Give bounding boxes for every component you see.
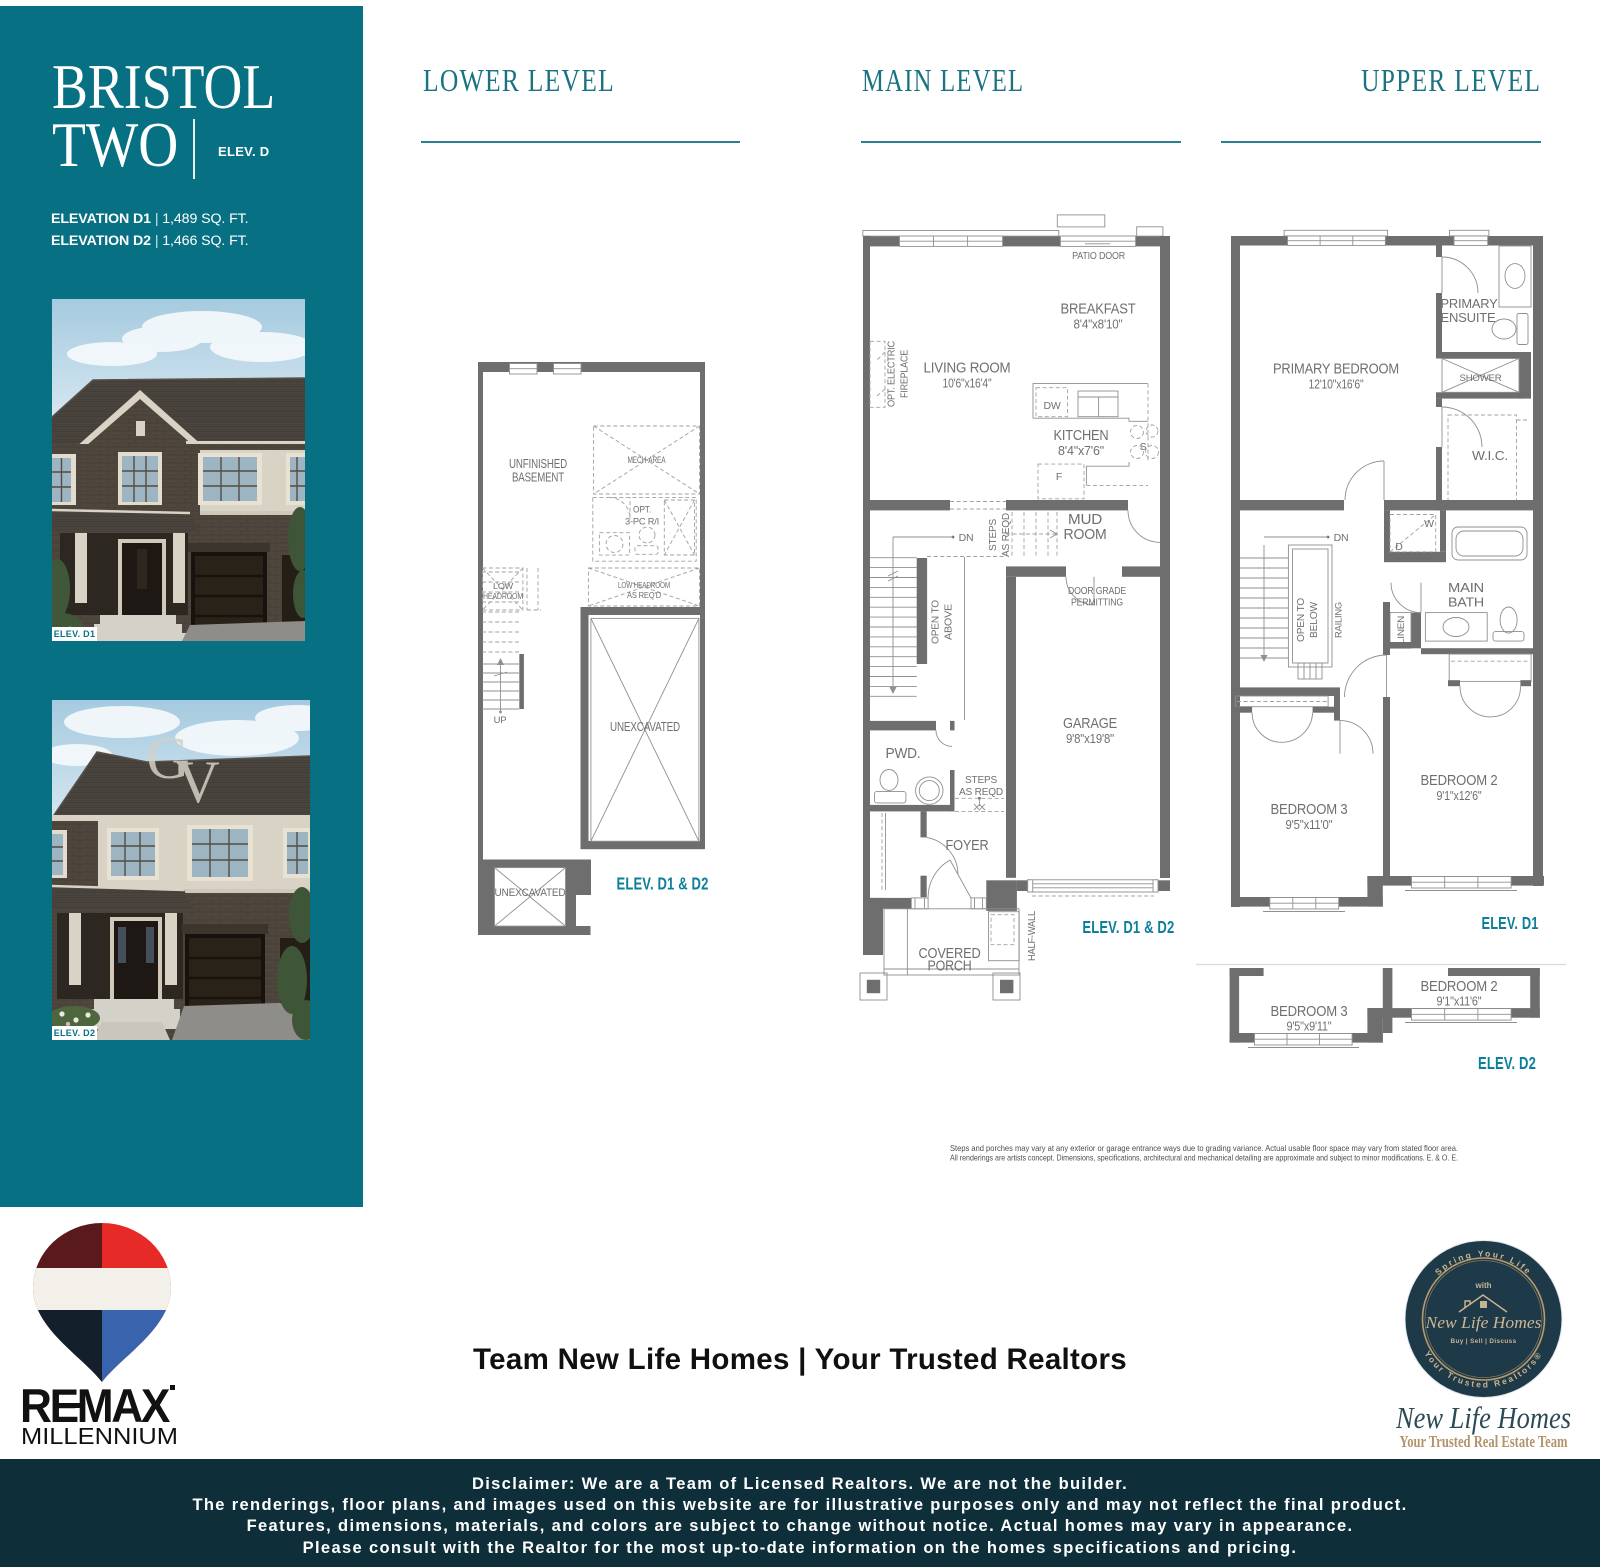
svg-text:BASEMENT: BASEMENT [512, 470, 564, 485]
svg-text:PRIMARY: PRIMARY [1441, 297, 1499, 311]
svg-text:MECH-AREA: MECH-AREA [628, 455, 667, 466]
svg-text:STEPS: STEPS [987, 519, 999, 551]
svg-text:DN: DN [959, 532, 974, 544]
svg-text:D: D [1395, 541, 1403, 553]
svg-text:9'5"x11'0": 9'5"x11'0" [1286, 817, 1333, 832]
svg-text:GARAGE: GARAGE [1063, 716, 1117, 732]
svg-text:HEADROOM: HEADROOM [483, 591, 523, 601]
svg-text:UNEXCAVATED: UNEXCAVATED [610, 719, 680, 734]
svg-text:LINEN: LINEN [1396, 616, 1407, 644]
svg-text:Buy | Sell | Discuss: Buy | Sell | Discuss [1451, 1338, 1517, 1345]
svg-text:S: S [1140, 441, 1147, 453]
svg-text:ELEV. D1 & D2: ELEV. D1 & D2 [1082, 917, 1174, 937]
svg-text:W.I.C.: W.I.C. [1472, 449, 1508, 463]
svg-text:MILLENNIUM: MILLENNIUM [21, 1423, 178, 1449]
svg-text:BREAKFAST: BREAKFAST [1061, 302, 1136, 318]
svg-text:ELEV. D1: ELEV. D1 [1482, 913, 1539, 933]
svg-text:DN: DN [1334, 532, 1349, 544]
svg-text:F: F [1056, 471, 1062, 483]
svg-text:PRIMARY BEDROOM: PRIMARY BEDROOM [1273, 362, 1399, 378]
svg-text:LOW HEADROOM: LOW HEADROOM [618, 580, 670, 590]
svg-text:3-PC R/I: 3-PC R/I [625, 517, 659, 528]
svg-text:AS REQ'D: AS REQ'D [627, 590, 661, 600]
svg-text:UNEXCAVATED: UNEXCAVATED [495, 887, 566, 899]
svg-text:AS REQD: AS REQD [959, 786, 1004, 798]
svg-text:9'8"x19'8": 9'8"x19'8" [1066, 731, 1115, 746]
svg-text:ROOM: ROOM [1064, 527, 1107, 543]
svg-text:PERMITTING: PERMITTING [1071, 597, 1123, 609]
svg-text:PWD.: PWD. [886, 746, 921, 762]
svg-text:UP: UP [494, 715, 507, 726]
svg-text:LIVING ROOM: LIVING ROOM [924, 361, 1011, 377]
svg-text:OPEN TO: OPEN TO [930, 600, 942, 644]
svg-text:BATH: BATH [1448, 596, 1484, 610]
svg-text:ENSUITE: ENSUITE [1441, 311, 1496, 325]
svg-text:9'1"x11'6": 9'1"x11'6" [1437, 994, 1482, 1009]
svg-text:LOW: LOW [493, 581, 513, 591]
svg-text:DW: DW [1043, 400, 1060, 412]
svg-text:KITCHEN: KITCHEN [1054, 428, 1109, 444]
svg-text:New Life Homes: New Life Homes [1395, 1400, 1571, 1435]
svg-text:Steps and porches may vary at: Steps and porches may vary at any exteri… [950, 1143, 1458, 1153]
svg-text:9'1"x12'6": 9'1"x12'6" [1437, 788, 1482, 803]
svg-text:All renderings are artists con: All renderings are artists concept. Dime… [950, 1153, 1458, 1163]
svg-text:ELEV. D2: ELEV. D2 [1478, 1053, 1536, 1073]
svg-text:PATIO DOOR: PATIO DOOR [1072, 250, 1126, 262]
svg-text:10'6"x16'4": 10'6"x16'4" [943, 376, 992, 391]
svg-text:MUD: MUD [1068, 512, 1102, 528]
svg-text:OPT.: OPT. [633, 505, 651, 516]
svg-text:SHOWER: SHOWER [1460, 373, 1502, 384]
svg-text:DOOR GRADE: DOOR GRADE [1068, 585, 1126, 597]
svg-text:8'4"x7'6": 8'4"x7'6" [1058, 443, 1105, 458]
svg-text:New Life Homes: New Life Homes [1424, 1313, 1541, 1332]
svg-text:with: with [1475, 1281, 1492, 1290]
svg-text:HALF-WALL: HALF-WALL [1026, 911, 1038, 961]
svg-text:FIREPLACE: FIREPLACE [899, 350, 911, 398]
svg-text:V: V [176, 749, 219, 815]
svg-text:RAILING: RAILING [1334, 602, 1345, 638]
svg-text:12'10"x16'6": 12'10"x16'6" [1309, 377, 1364, 392]
svg-text:MAIN: MAIN [1448, 581, 1484, 595]
svg-text:STEPS: STEPS [965, 774, 997, 786]
svg-text:Your Trusted Real Estate Team: Your Trusted Real Estate Team [1400, 1432, 1568, 1451]
svg-text:AS REQD: AS REQD [1000, 512, 1012, 557]
svg-text:W: W [1424, 518, 1434, 530]
svg-text:FOYER: FOYER [946, 838, 989, 854]
svg-text:OPT. ELECTRIC: OPT. ELECTRIC [886, 340, 898, 407]
svg-text:PORCH: PORCH [928, 959, 972, 975]
svg-text:9'5"x9'11": 9'5"x9'11" [1287, 1019, 1332, 1034]
svg-text:8'4"x8'10": 8'4"x8'10" [1074, 317, 1124, 332]
svg-text:BEDROOM 2: BEDROOM 2 [1421, 773, 1498, 789]
svg-text:ELEV. D1 & D2: ELEV. D1 & D2 [617, 874, 709, 894]
svg-text:OPEN TO: OPEN TO [1295, 598, 1307, 642]
svg-text:BEDROOM 3: BEDROOM 3 [1271, 802, 1348, 818]
svg-text:ABOVE: ABOVE [943, 604, 955, 640]
svg-text:BELOW: BELOW [1308, 602, 1320, 638]
